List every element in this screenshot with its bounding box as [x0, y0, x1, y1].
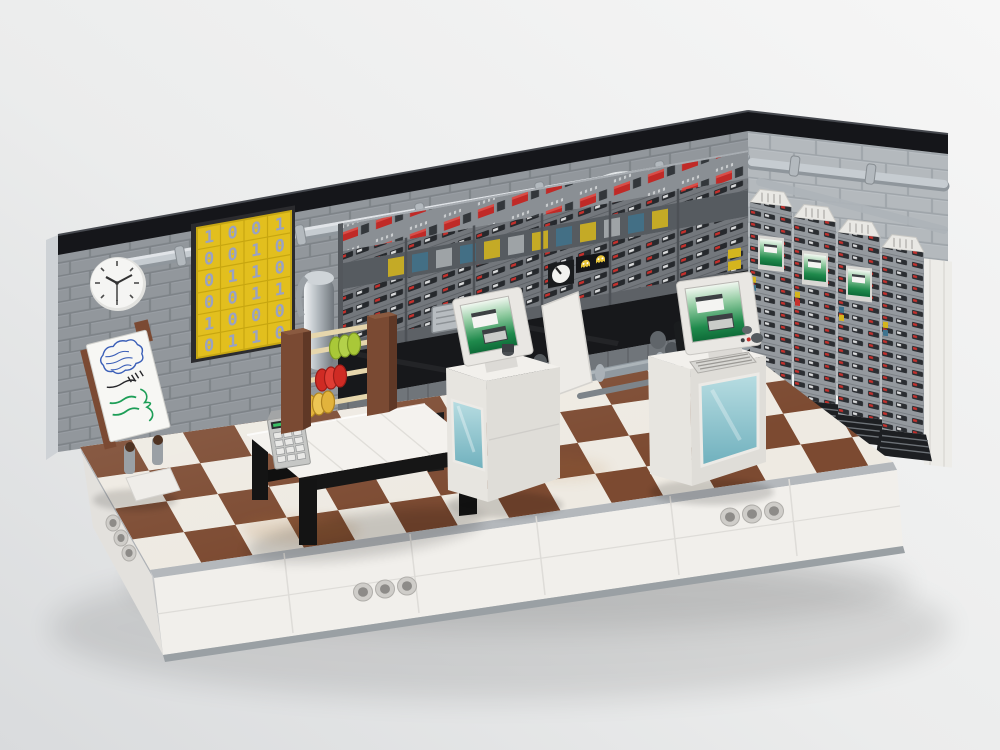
server-cabinet — [876, 233, 932, 461]
server-cabinet — [832, 218, 888, 446]
cabinet-side-column — [924, 258, 952, 467]
lego-computer-room-render: 1001 0010 0110 0011 1000 0110 — [0, 0, 1000, 750]
abacus-beads-green — [330, 333, 361, 359]
wall-clock — [90, 257, 146, 311]
wall-end-cap — [46, 235, 58, 460]
desk-cup — [502, 344, 514, 352]
desk-left-face — [648, 356, 692, 486]
table-leg — [299, 479, 317, 545]
desk-knob — [751, 333, 763, 343]
gauge-tile — [548, 260, 574, 289]
abacus-beads-red — [316, 365, 347, 391]
desk-knob — [742, 326, 752, 334]
